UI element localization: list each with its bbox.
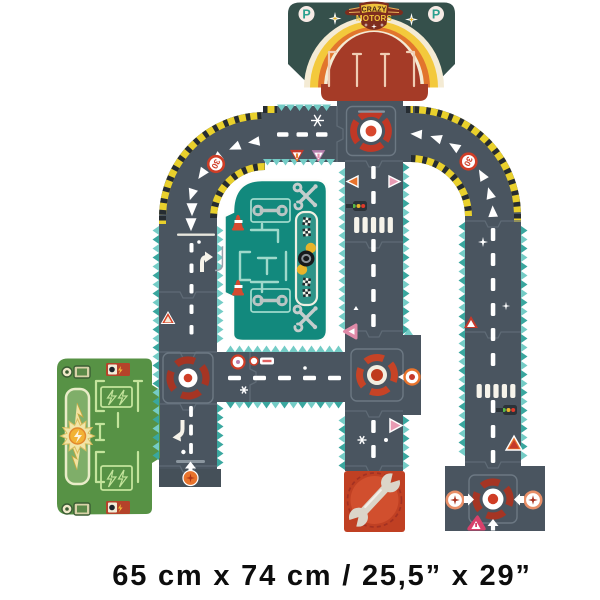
- svg-text:65 cm x 74 cm / 25,5” x 29”: 65 cm x 74 cm / 25,5” x 29”: [112, 560, 531, 592]
- svg-text:CRAZY: CRAZY: [361, 7, 386, 14]
- svg-text:P: P: [302, 8, 310, 22]
- svg-text:MOTORS: MOTORS: [356, 14, 393, 23]
- svg-text:P: P: [432, 8, 440, 22]
